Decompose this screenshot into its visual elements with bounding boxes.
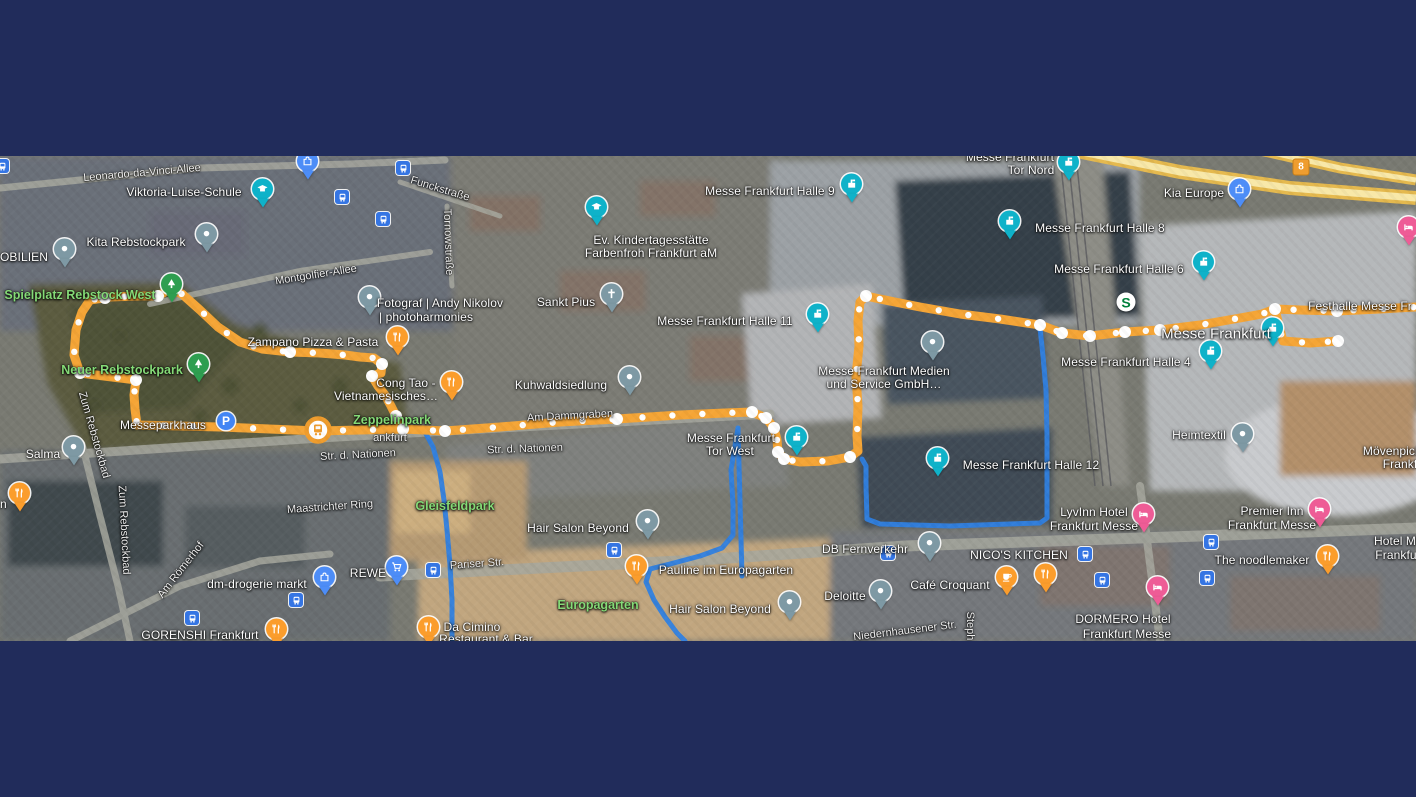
label-vietnamesisches[interactable]: Vietnamesisches…: [334, 389, 438, 403]
pin-nicos-kitchen[interactable]: [1035, 564, 1057, 594]
food-icon: [1035, 564, 1056, 585]
label-frankfurt-messe[interactable]: Frankfurt Messe: [1050, 519, 1138, 533]
label-messe-frankfurt-halle-11[interactable]: Messe Frankfurt Halle 11: [657, 314, 793, 328]
letterbox-top: [0, 0, 1416, 156]
food-icon: [387, 327, 408, 348]
cart-icon: [386, 557, 407, 578]
label-obilien[interactable]: OBILIEN: [0, 250, 48, 264]
pin-hair-salon-beyond-2[interactable]: [779, 592, 801, 622]
label-frankfurt-messe[interactable]: Frankfurt Messe: [1083, 627, 1171, 641]
pin-messe-halle-6[interactable]: [1193, 252, 1215, 282]
screenshot-stage: SP8Leonardo-da-Vinci-AlleeMontgolfier-Al…: [0, 0, 1416, 797]
label-photoharmonies[interactable]: | photoharmonies: [379, 310, 473, 324]
route-dot: [1290, 307, 1296, 313]
pin-kia-europe[interactable]: [1229, 179, 1251, 209]
tree-icon: [161, 274, 182, 295]
route-dot: [639, 414, 645, 420]
pin-spielplatz-rebstock-west[interactable]: [161, 274, 183, 304]
label-ev-kindertagesst-tte[interactable]: Ev. Kindertagesstätte: [593, 233, 708, 247]
label-tor-west[interactable]: Tor West: [706, 444, 754, 458]
route-vertex-dot: [760, 412, 772, 424]
pin-sankt-pius[interactable]: [601, 284, 623, 314]
route-dot: [789, 457, 795, 463]
label-ankfurt: ankfurt: [373, 432, 407, 444]
transit-stop-icon[interactable]: [0, 159, 9, 173]
label-rewe[interactable]: REWE: [350, 566, 386, 580]
route-vertex-dot: [746, 406, 758, 418]
transit-stop-icon[interactable]: [607, 543, 621, 557]
route-dot: [224, 330, 230, 336]
label-frankfurt-messe[interactable]: Frankfurt Messe: [1228, 518, 1316, 532]
hall-icon: [786, 427, 807, 448]
route-dot: [729, 410, 735, 416]
school-icon: [252, 179, 273, 200]
route-dot: [310, 350, 316, 356]
route-dot: [669, 412, 675, 418]
dot-icon: [63, 437, 84, 458]
route-dot: [1299, 339, 1305, 345]
pin-restaurant-edge-left[interactable]: [9, 483, 31, 513]
route-vertex-dot: [844, 451, 856, 463]
transit-stop-icon[interactable]: [376, 212, 390, 226]
transit-stop-icon[interactable]: [396, 161, 410, 175]
bag-icon: [314, 567, 335, 588]
route-dot: [699, 411, 705, 417]
label-und-service-gmbh[interactable]: und Service GmbH…: [826, 377, 941, 391]
transit-stop-icon[interactable]: [1200, 571, 1214, 585]
hall-icon: [1193, 252, 1214, 273]
cafe-icon: [996, 567, 1017, 588]
route-vertex-dot: [860, 290, 872, 302]
pin-dormero-hotel[interactable]: [1147, 577, 1169, 607]
route-dot: [854, 426, 860, 432]
label-pauline-im-europagarten[interactable]: Pauline im Europagarten: [659, 563, 793, 577]
dot-icon: [637, 511, 658, 532]
route-dot: [430, 427, 436, 433]
pin-dm-drogerie-markt[interactable]: [314, 567, 336, 597]
food-icon: [626, 556, 647, 577]
pin-viktoria-luise-schule[interactable]: [252, 179, 274, 209]
label-n[interactable]: n: [0, 497, 7, 511]
bag-icon: [297, 156, 318, 172]
label-hair-salon-beyond[interactable]: Hair Salon Beyond: [669, 602, 771, 616]
label-db-fernverkehr[interactable]: DB Fernverkehr: [822, 542, 908, 556]
label-messe-frankfurt-halle-12[interactable]: Messe Frankfurt Halle 12: [963, 458, 1099, 472]
label-the-noodlemaker[interactable]: The noodlemaker: [1215, 553, 1310, 567]
hall-icon: [841, 174, 862, 195]
route-dot: [460, 426, 466, 432]
label-premier-inn[interactable]: Premier Inn: [1240, 504, 1303, 518]
label-viktoria-luise-schule[interactable]: Viktoria-Luise-Schule: [126, 185, 241, 199]
route-dot: [856, 306, 862, 312]
route-dot: [131, 388, 137, 394]
route-dot: [1143, 328, 1149, 334]
pin-zampano-pizza-pasta[interactable]: [387, 327, 409, 357]
route-dot: [877, 296, 883, 302]
hotel-icon: [1398, 217, 1416, 238]
pin-shop-edge-top[interactable]: [297, 156, 319, 181]
pin-hotel-edge-right[interactable]: [1398, 217, 1416, 247]
label-restaurant-bar[interactable]: Restaurant & Bar: [439, 632, 533, 641]
transit-stop-icon[interactable]: [1204, 535, 1218, 549]
label-messe-frankfurt[interactable]: Messe Frankfurt: [687, 431, 775, 445]
pin-messe-medien-service[interactable]: [922, 332, 944, 362]
food-icon: [418, 617, 439, 638]
label-kuhwaldsiedlung[interactable]: Kuhwaldsiedlung: [515, 378, 607, 392]
train-window: [316, 426, 321, 429]
pin-kuhwaldsiedlung[interactable]: [619, 367, 641, 397]
label-messe-frankfurt-halle-4[interactable]: Messe Frankfurt Halle 4: [1061, 355, 1191, 369]
route-vertex-dot: [1119, 326, 1131, 338]
label-caf-croquant[interactable]: Café Croquant: [910, 578, 989, 592]
label-tornowstra-e: Tornowstraße: [441, 208, 455, 275]
label-europagarten[interactable]: Europagarten: [557, 598, 638, 612]
route-dot: [369, 355, 375, 361]
parking-icon[interactable]: P: [217, 412, 235, 430]
hall-icon: [807, 304, 828, 325]
letterbox-bottom: [0, 641, 1416, 797]
route-dot: [1113, 330, 1119, 336]
route-dot: [936, 307, 942, 313]
route-dot: [1232, 316, 1238, 322]
food-icon: [441, 372, 462, 393]
label-gleisfeldpark[interactable]: Gleisfeldpark: [415, 499, 494, 513]
route-blue[interactable]: [862, 328, 1047, 526]
pin-rewe[interactable]: [386, 557, 408, 587]
hotel-icon: [1309, 499, 1330, 520]
train-wheel: [315, 433, 317, 435]
label-zeppelinpark[interactable]: Zeppelinpark: [353, 413, 431, 427]
label-deloitte[interactable]: Deloitte: [824, 589, 866, 603]
route-vertex-dot: [439, 425, 451, 437]
pin-gorenshi-frankfurt[interactable]: [266, 619, 288, 642]
label-spielplatz-rebstock-west[interactable]: Spielplatz Rebstock West: [4, 288, 155, 302]
pin-messe-halle-11[interactable]: [807, 304, 829, 334]
dot-icon: [54, 239, 75, 260]
pin-deloitte[interactable]: [870, 581, 892, 611]
label-messe-frankfurt-halle-6[interactable]: Messe Frankfurt Halle 6: [1054, 262, 1184, 276]
label-sankt-pius[interactable]: Sankt Pius: [537, 295, 595, 309]
route-dot: [965, 312, 971, 318]
hall-icon: [1200, 341, 1221, 362]
hall-icon: [1058, 156, 1079, 173]
label-frankfu[interactable]: Frankfu: [1375, 548, 1416, 562]
dot-icon: [919, 533, 940, 554]
hall-icon: [999, 211, 1020, 232]
food-icon: [9, 483, 30, 504]
label-fotograf-andy-nikolov[interactable]: Fotograf | Andy Nikolov: [377, 296, 503, 310]
route-blue[interactable]: [425, 432, 452, 641]
label-dm-drogerie-markt[interactable]: dm-drogerie markt: [207, 577, 307, 591]
pin-the-noodlemaker[interactable]: [1317, 546, 1339, 576]
map-canvas[interactable]: SP8Leonardo-da-Vinci-AlleeMontgolfier-Al…: [0, 156, 1416, 641]
pin-cong-tao[interactable]: [441, 372, 463, 402]
label-farbenfroh-frankfurt-am[interactable]: Farbenfroh Frankfurt aM: [585, 246, 717, 260]
route-dot: [1261, 310, 1267, 316]
label-m-venpick[interactable]: Mövenpick: [1363, 444, 1416, 458]
pin-neuer-rebstockpark[interactable]: [188, 354, 210, 384]
pin-heimtextil[interactable]: [1232, 424, 1254, 454]
label-messe-frankfurt-medien[interactable]: Messe Frankfurt Medien: [818, 364, 950, 378]
route-dot: [75, 319, 81, 325]
pin-ev-kindertagesstaette[interactable]: [586, 197, 608, 227]
route-vertex-dot: [376, 358, 388, 370]
transit-stop-icon[interactable]: [1078, 547, 1092, 561]
route-dot: [854, 396, 860, 402]
pin-messe-halle-12[interactable]: [927, 448, 949, 478]
route-vertex-dot: [1084, 330, 1096, 342]
label-hotel-m[interactable]: Hotel M: [1374, 534, 1416, 548]
dot-icon: [779, 592, 800, 613]
dot-icon: [870, 581, 891, 602]
route-vertex-dot: [1332, 335, 1344, 347]
label-heimtextil[interactable]: Heimtextil: [1172, 428, 1226, 442]
sbahn-icon[interactable]: S: [1117, 293, 1136, 312]
route-dot: [856, 336, 862, 342]
pin-db-fernverkehr[interactable]: [919, 533, 941, 563]
food-icon: [266, 619, 287, 640]
pin-obilien[interactable]: [54, 239, 76, 269]
transit-stop-icon[interactable]: [185, 611, 199, 625]
tree-icon: [188, 354, 209, 375]
route-dot: [490, 424, 496, 430]
label-steph: Steph: [964, 612, 976, 641]
label-hair-salon-beyond[interactable]: Hair Salon Beyond: [527, 521, 629, 535]
dot-icon: [1232, 424, 1253, 445]
label-messeparkhaus[interactable]: Messeparkhaus: [120, 418, 206, 432]
route-vertex-dot: [1269, 303, 1281, 315]
pin-messe-halle-4[interactable]: [1200, 341, 1222, 371]
label-lyvinn-hotel[interactable]: LyvInn Hotel: [1060, 505, 1127, 519]
label-messe-frankfurt[interactable]: Messe Frankfurt: [1161, 326, 1271, 343]
pin-messe-halle-9[interactable]: [841, 174, 863, 204]
dot-icon: [619, 367, 640, 388]
route-dot: [1025, 320, 1031, 326]
label-nico-s-kitchen[interactable]: NICO'S KITCHEN: [970, 548, 1068, 562]
route-vertex-dot: [1056, 327, 1068, 339]
route-dot: [201, 311, 207, 317]
pin-kita-rebstockpark[interactable]: [196, 224, 218, 254]
label-tor-nord[interactable]: Tor Nord: [1008, 163, 1055, 177]
food-icon: [1317, 546, 1338, 567]
route-dot: [520, 422, 526, 428]
dot-icon: [922, 332, 943, 353]
bag-icon: [1229, 179, 1250, 200]
route-vertex-dot: [1034, 319, 1046, 331]
label-messe-frankfurt-halle-8[interactable]: Messe Frankfurt Halle 8: [1035, 221, 1165, 235]
hotel-icon: [1147, 577, 1168, 598]
route-dot: [1325, 339, 1331, 345]
route-dot: [280, 426, 286, 432]
pin-pauline-im-europagarten[interactable]: [626, 556, 648, 586]
pin-messe-halle-8[interactable]: [999, 211, 1021, 241]
pin-hair-salon-beyond-1[interactable]: [637, 511, 659, 541]
hall-icon: [927, 448, 948, 469]
train-wheel: [319, 433, 321, 435]
route-dot: [819, 458, 825, 464]
label-neuer-rebstockpark[interactable]: Neuer Rebstockpark: [61, 363, 183, 377]
pin-messe-tor-west[interactable]: [786, 427, 808, 457]
route-orange-loop[interactable]: [74, 289, 403, 431]
dot-icon: [196, 224, 217, 245]
label-zampano-pizza-pasta[interactable]: Zampano Pizza & Pasta: [248, 335, 379, 349]
label-dormero-hotel[interactable]: DORMERO Hotel: [1075, 612, 1170, 626]
church-icon: [601, 284, 622, 305]
label-cong-tao[interactable]: Cong Tao -: [376, 376, 435, 390]
label-kia-europe[interactable]: Kia Europe: [1164, 186, 1224, 200]
pin-da-cimino[interactable]: [418, 617, 440, 642]
pin-messe-tor-nord[interactable]: [1058, 156, 1080, 182]
transit-stop-icon[interactable]: [426, 563, 440, 577]
label-messe-frankfurt-halle-9[interactable]: Messe Frankfurt Halle 9: [705, 184, 835, 198]
pin-cafe-croquant[interactable]: [996, 567, 1018, 597]
route-dot: [250, 425, 256, 431]
pin-salma[interactable]: [63, 437, 85, 467]
label-kita-rebstockpark[interactable]: Kita Rebstockpark: [86, 235, 185, 249]
route-dot: [340, 427, 346, 433]
school-icon: [586, 197, 607, 218]
label-gorenshi-frankfurt[interactable]: GORENSHI Frankfurt: [141, 628, 258, 641]
road-badge-b8: 8: [1293, 159, 1310, 176]
route-dot: [906, 302, 912, 308]
route-dot: [71, 349, 77, 355]
route-dot: [995, 316, 1001, 322]
route-dot: [340, 352, 346, 358]
transit-stop-icon[interactable]: [335, 190, 349, 204]
transit-stop-icon[interactable]: [1095, 573, 1109, 587]
transit-stop-icon[interactable]: [289, 593, 303, 607]
label-frankf[interactable]: Frankf: [1383, 457, 1416, 471]
label-salma[interactable]: Salma: [26, 447, 61, 461]
label-festhalle-messe-fr[interactable]: Festhalle Messe Fr: [1308, 299, 1412, 313]
